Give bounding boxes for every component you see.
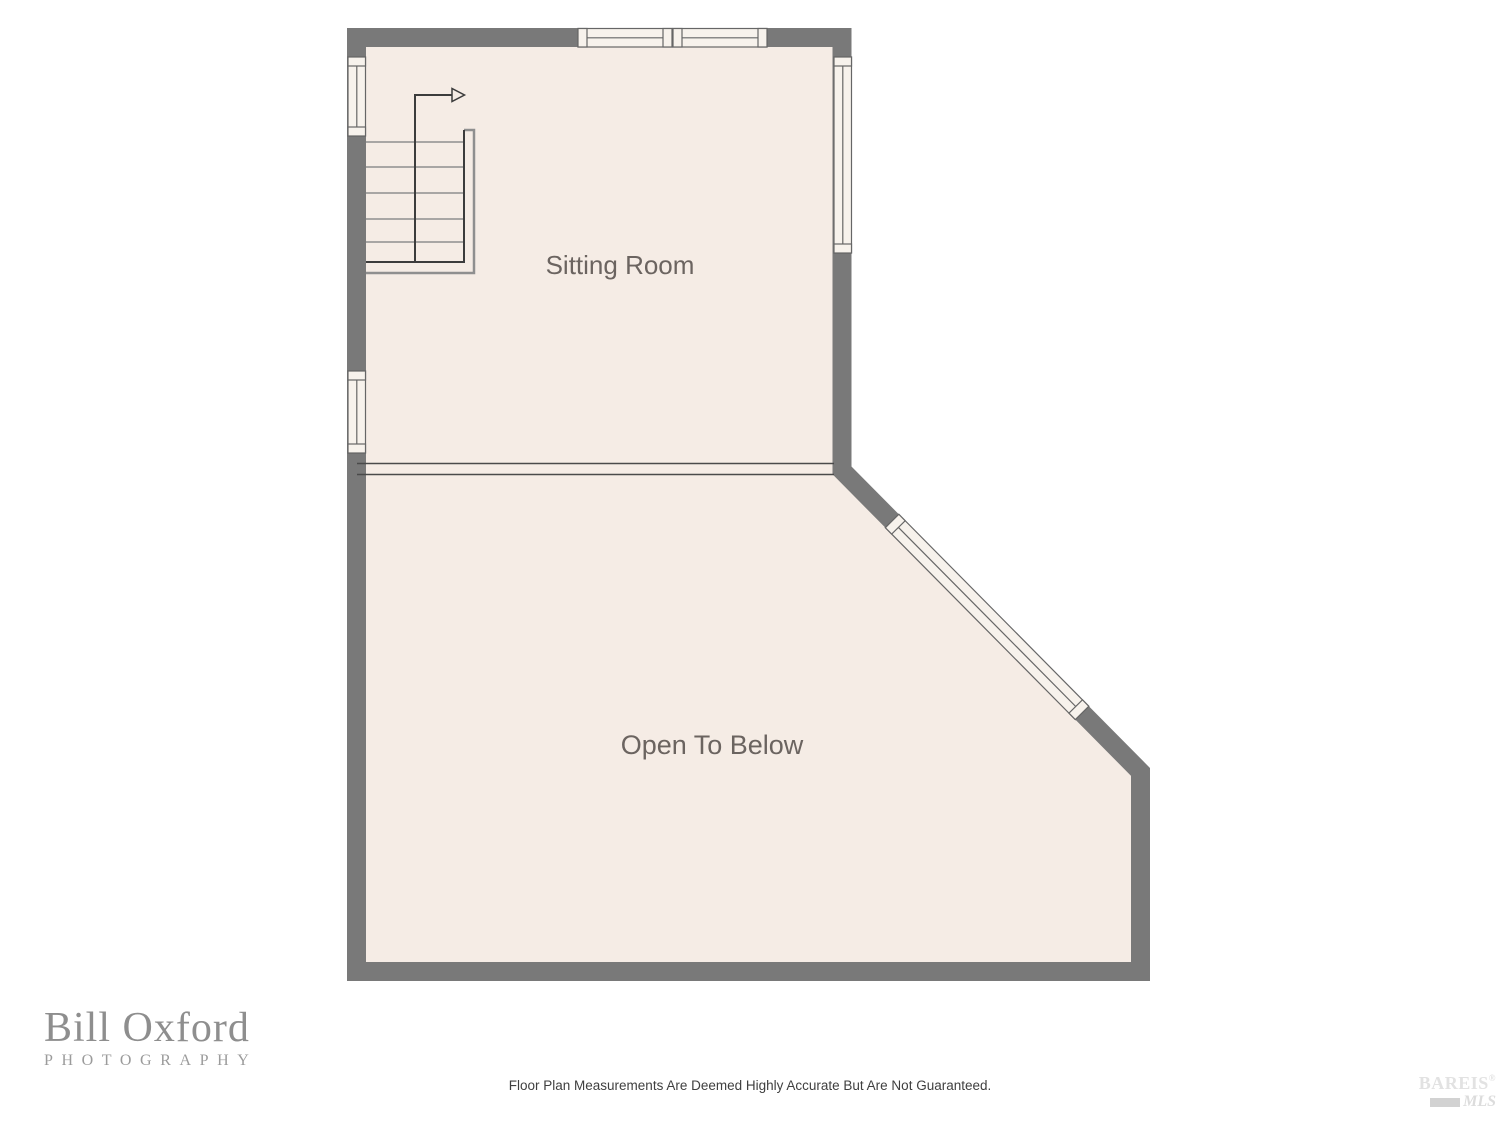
room-label-open-to-below: Open To Below bbox=[621, 730, 804, 761]
floor-plan-drawing bbox=[0, 0, 1500, 1125]
mls-logo-bar bbox=[1430, 1098, 1460, 1107]
window-top-left-icon bbox=[578, 29, 672, 48]
window-left-lower-icon bbox=[348, 371, 366, 453]
registered-mark-icon: ® bbox=[1489, 1073, 1496, 1083]
mls-logo-sub: MLS bbox=[1463, 1094, 1496, 1110]
disclaimer-text: Floor Plan Measurements Are Deemed Highl… bbox=[0, 1078, 1500, 1093]
window-top-right-icon bbox=[673, 29, 767, 48]
window-right-wall-icon bbox=[834, 57, 852, 253]
room-label-sitting-room: Sitting Room bbox=[546, 250, 695, 281]
photographer-logo: Bill Oxford PHOTOGRAPHY bbox=[44, 1006, 304, 1071]
window-left-upper-icon bbox=[348, 57, 366, 136]
photographer-name: Bill Oxford bbox=[44, 1006, 304, 1050]
photographer-subtitle: PHOTOGRAPHY bbox=[44, 1051, 304, 1071]
floor-plan-page: Sitting Room Open To Below Bill Oxford P… bbox=[0, 0, 1500, 1125]
mls-logo: BAREIS® MLS bbox=[1418, 1074, 1496, 1110]
mls-logo-name: BAREIS® bbox=[1418, 1074, 1496, 1092]
